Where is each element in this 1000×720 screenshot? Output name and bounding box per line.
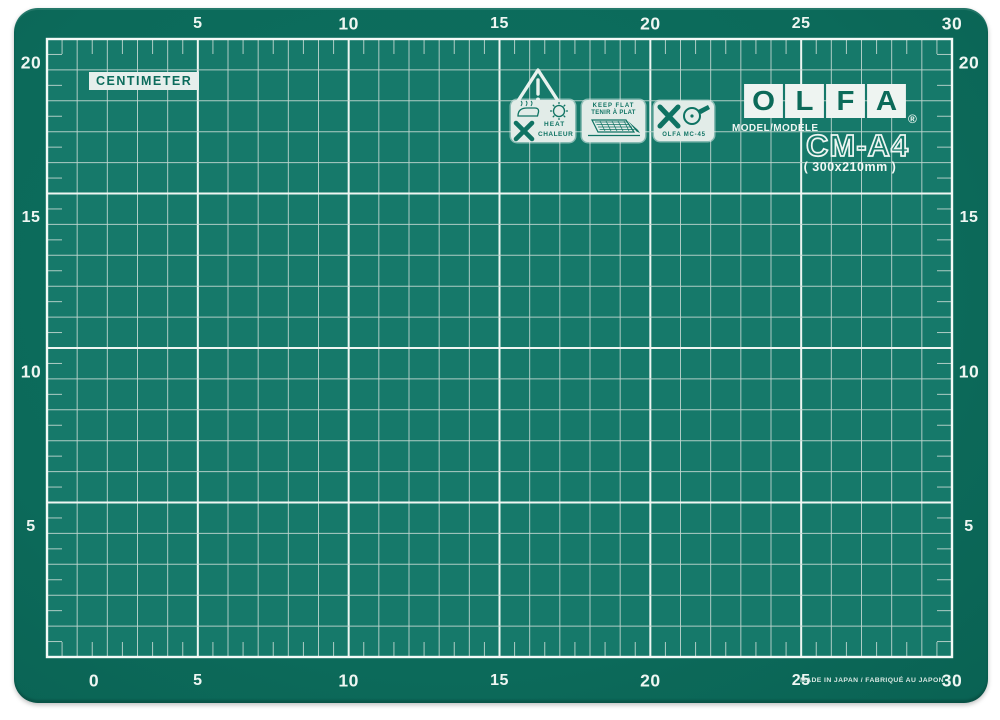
ruler-number-top-15: 15 xyxy=(490,15,509,33)
ruler-number-bottom-0: 0 xyxy=(89,671,99,692)
svg-text:CM-A4: CM-A4 xyxy=(806,128,909,163)
ruler-number-bottom-5: 5 xyxy=(193,672,202,690)
ruler-number-bottom-10: 10 xyxy=(338,671,358,692)
cutter-model-label: OLFA MC-45 xyxy=(654,132,714,138)
ruler-number-right-20: 20 xyxy=(959,53,979,74)
ruler-number-left-5: 5 xyxy=(26,518,35,536)
heat-warning-icon: HEAT CHALEUR xyxy=(511,100,575,142)
ruler-number-top-30: 30 xyxy=(942,14,962,35)
cutting-mat: 5101520253005101520253020151052015105 CE… xyxy=(14,8,988,703)
registered-trademark-symbol: ® xyxy=(908,112,917,126)
flat-mat-drawing xyxy=(582,117,645,141)
no-cutter-icon: OLFA MC-45 xyxy=(654,101,714,141)
keep-flat-label-en: KEEP FLAT xyxy=(582,103,645,109)
heat-label-en: HEAT xyxy=(544,121,565,128)
logo-letter-l: L xyxy=(785,84,824,118)
ruler-number-left-10: 10 xyxy=(21,362,41,383)
olfa-logo: O L F A xyxy=(745,84,905,118)
made-in-label: MADE IN JAPAN / FABRIQUÉ AU JAPON xyxy=(800,677,944,684)
ruler-number-bottom-15: 15 xyxy=(490,672,509,690)
page-background: 5101520253005101520253020151052015105 CE… xyxy=(0,0,1000,720)
ruler-number-right-10: 10 xyxy=(959,362,979,383)
ruler-number-left-15: 15 xyxy=(22,209,41,227)
ruler-number-left-20: 20 xyxy=(21,53,41,74)
ruler-number-top-20: 20 xyxy=(640,14,660,35)
ruler-number-bottom-30: 30 xyxy=(942,671,962,692)
ruler-number-top-5: 5 xyxy=(193,15,202,33)
ruler-number-top-25: 25 xyxy=(792,15,811,33)
keep-flat-icon: KEEP FLAT TENIR À PLAT xyxy=(582,100,645,142)
logo-letter-o: O xyxy=(744,84,783,118)
heat-label-fr: CHALEUR xyxy=(538,131,573,138)
ruler-number-right-15: 15 xyxy=(960,209,979,227)
unit-label: CENTIMETER xyxy=(89,72,199,90)
mat-dimensions-label: ( 300x210mm ) xyxy=(775,160,925,174)
ruler-number-right-5: 5 xyxy=(964,518,973,536)
logo-letter-f: F xyxy=(826,84,865,118)
keep-flat-label-fr: TENIR À PLAT xyxy=(582,110,645,116)
ruler-number-bottom-20: 20 xyxy=(640,671,660,692)
ruler-number-top-10: 10 xyxy=(338,14,358,35)
logo-letter-a: A xyxy=(867,84,906,118)
